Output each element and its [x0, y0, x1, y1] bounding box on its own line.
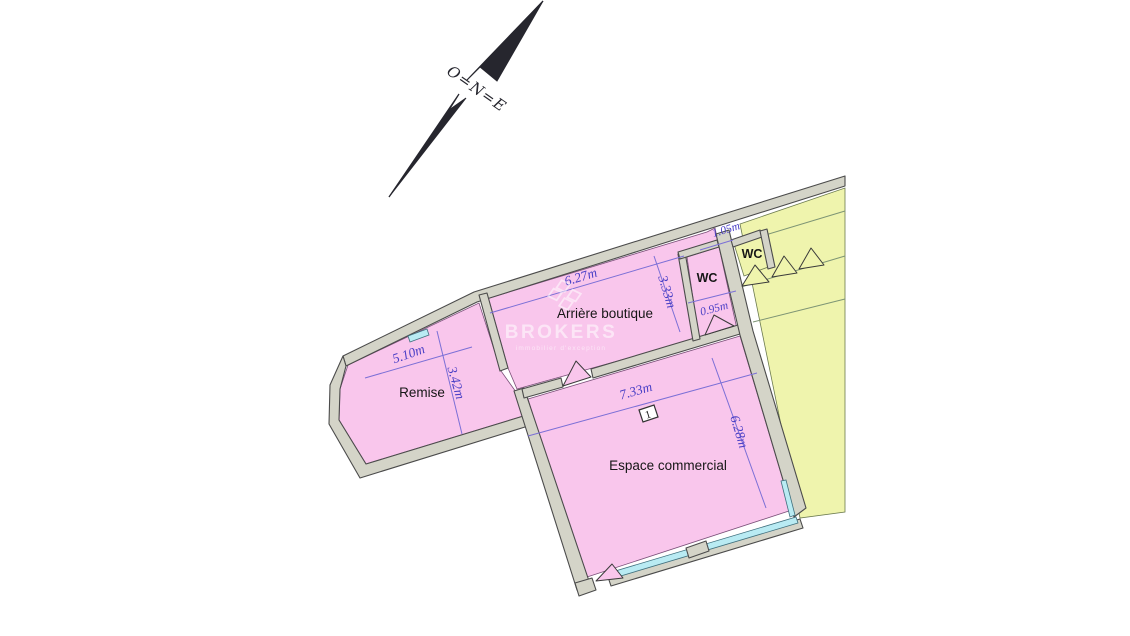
label-espace-commercial: Espace commercial [609, 458, 727, 473]
label-remise: Remise [399, 385, 445, 400]
floor-plan-page: 6.27m 3.33m 5.10m 3.42m 7.33m 6.28m 0.95… [0, 0, 1130, 636]
compass-lower-blade-black [389, 98, 466, 197]
compass: O=N=E [389, 1, 543, 197]
compass-upper-blade-black [480, 1, 543, 81]
label-wc-pink: WC [697, 271, 718, 285]
watermark-tagline: immobilier d'exception [516, 345, 607, 352]
label-arriere-boutique: Arrière boutique [557, 306, 653, 321]
floor-plan-drawing: 6.27m 3.33m 5.10m 3.42m 7.33m 6.28m 0.95… [0, 0, 1130, 636]
label-wc-yellow: WC [742, 247, 763, 261]
watermark-brand: BROKERS [505, 322, 618, 343]
